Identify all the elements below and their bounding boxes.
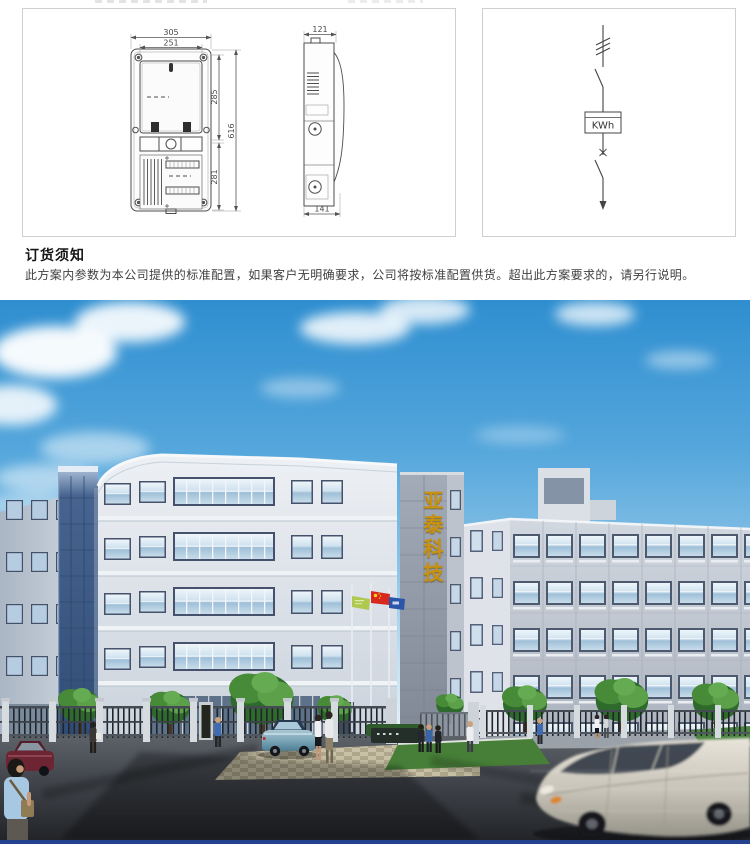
circuit-diagram-panel: KWh — [482, 8, 736, 237]
company-building-photo: 亚泰科技 — [0, 300, 750, 840]
switch-blade-lower — [595, 160, 603, 178]
kwh-meter-label: KWh — [592, 121, 614, 132]
meter-box-front-view — [131, 49, 211, 214]
dim-width-outer: 305 — [163, 28, 178, 37]
dim-height-upper: 285 — [210, 89, 219, 104]
building-sign-text: 亚泰科技 — [417, 490, 445, 602]
meter-box-side-view — [304, 38, 344, 206]
cropped-content-artifact — [348, 0, 423, 3]
single-line-diagram: KWh — [483, 9, 735, 236]
switch-blade-upper — [595, 69, 603, 87]
outgoing-arrow — [600, 201, 607, 210]
building-photo-scene — [0, 300, 750, 840]
ordering-notice-title: 订货须知 — [25, 245, 85, 265]
cropped-content-artifact — [95, 0, 207, 3]
footer-accent-bar — [0, 840, 750, 844]
dim-height-total: 616 — [227, 123, 236, 138]
dim-width-inner: 251 — [163, 39, 178, 48]
page: 305 251 285 281 616 — [0, 0, 750, 854]
dim-depth-top: 121 — [312, 25, 327, 34]
dim-depth-bottom: 141 — [314, 205, 329, 214]
ordering-notice-text: 此方案内参数为本公司提供的标准配置，如果客户无明确要求，公司将按标准配置供货。超… — [25, 267, 730, 284]
entrance-stone-sign — [371, 728, 419, 743]
dimension-drawings-panel: 305 251 285 281 616 — [22, 8, 456, 237]
dim-height-lower: 281 — [210, 169, 219, 184]
dimension-drawings: 305 251 285 281 616 — [23, 9, 455, 236]
